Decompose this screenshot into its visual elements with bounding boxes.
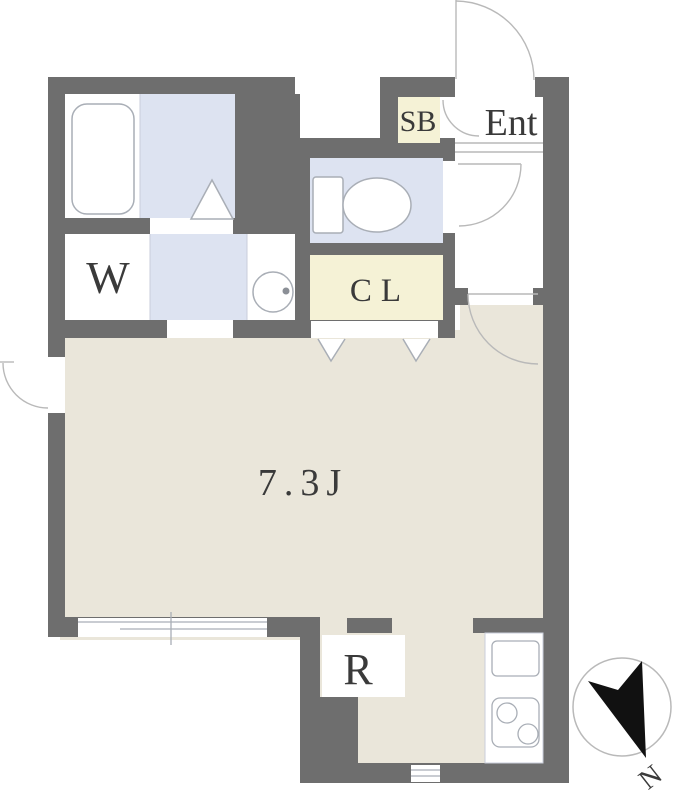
wall-bottom-section-left xyxy=(300,632,320,783)
wall-kitchen-top-stub xyxy=(473,618,543,633)
compass: N xyxy=(573,658,671,796)
shoebox-label: SB xyxy=(400,105,437,138)
entrance-door-arc xyxy=(456,1,534,80)
opening-closet-threshold xyxy=(311,321,438,338)
washer-label: W xyxy=(86,252,130,303)
entrance-label: Ent xyxy=(485,102,538,144)
left-window-swing-arc xyxy=(3,363,48,408)
wall-top-left-block xyxy=(48,77,295,94)
compass-north-label: N xyxy=(633,759,668,796)
washroom-wet-floor xyxy=(150,233,247,320)
wall-toilet-left xyxy=(295,158,310,338)
opening-left-window xyxy=(48,357,65,413)
opening-washer-south xyxy=(167,320,233,338)
opening-bath-washer xyxy=(150,218,233,234)
main-room-label: 7.3J xyxy=(258,462,348,504)
wall-left-upper xyxy=(48,94,65,358)
wall-right-exterior xyxy=(543,77,569,783)
opening-main-window xyxy=(78,618,267,637)
floor-plan-drawing: W SB Ent CL 7.3J R N xyxy=(0,0,684,800)
wall-room-door-stub-right xyxy=(533,288,543,305)
opening-entrance-door xyxy=(455,77,535,97)
washbasin-faucet-dot xyxy=(283,288,290,295)
opening-bottom-vent xyxy=(411,765,440,782)
wall-bath-right-block xyxy=(235,94,300,234)
floor-plan-page: W SB Ent CL 7.3J R N xyxy=(0,0,684,800)
toilet-bowl xyxy=(343,178,411,232)
wall-left-of-shoebox xyxy=(380,94,398,144)
opening-toilet-door xyxy=(443,161,455,233)
refrigerator-label: R xyxy=(343,645,373,694)
wall-room-door-stub-left xyxy=(455,288,468,305)
wall-left-lower xyxy=(48,413,65,618)
hallway-floor-sliver xyxy=(440,97,455,142)
toilet-tank xyxy=(313,177,343,233)
wall-toilet-closet-divider xyxy=(310,243,443,255)
wall-stub-above-refrigerator xyxy=(347,618,392,633)
closet-label: CL xyxy=(350,273,410,309)
bathtub xyxy=(72,104,134,214)
